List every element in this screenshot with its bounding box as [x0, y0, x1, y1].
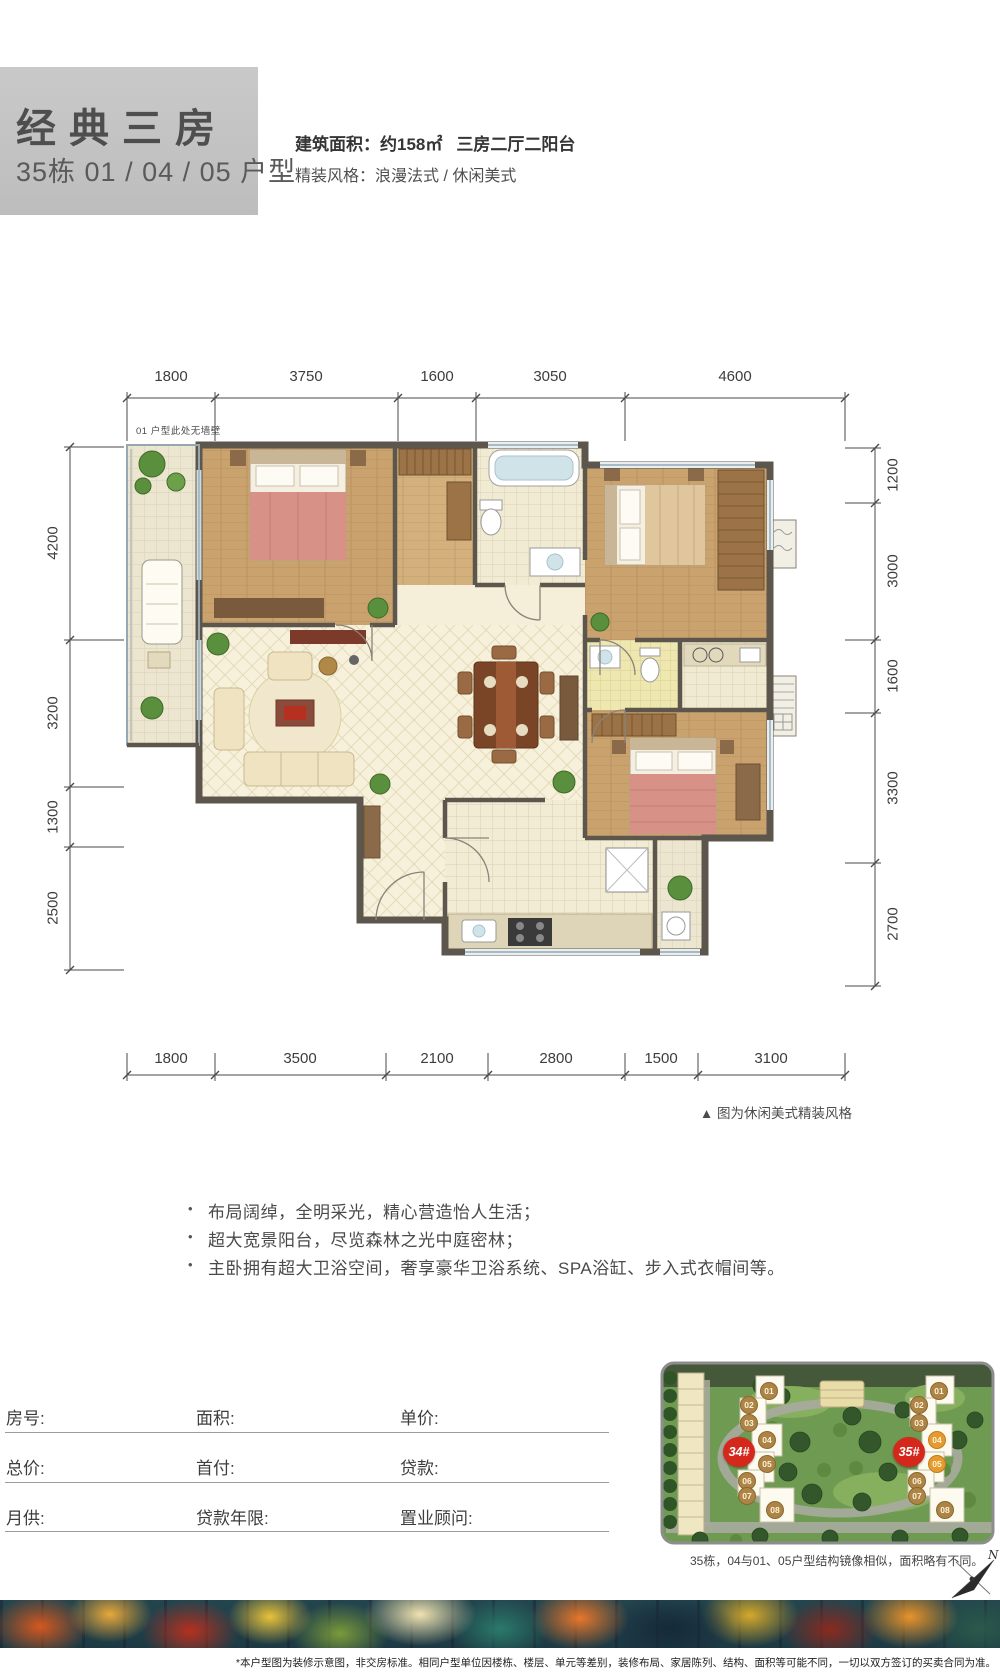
unit-badge-35-08: 08: [936, 1501, 954, 1519]
dim-left-1: 4200: [45, 526, 62, 559]
dim-bottom-3: 2100: [420, 1050, 453, 1067]
compass-north-label: N: [988, 1548, 999, 1562]
unit-badge-35-03: 03: [910, 1414, 928, 1432]
form-rule-2: [5, 1482, 609, 1483]
dim-left-2: 3200: [45, 696, 62, 729]
building-badge-34: 34#: [723, 1437, 755, 1467]
unit-badge-34-01: 01: [760, 1382, 778, 1400]
form-rule-3: [5, 1531, 609, 1532]
foyer: [360, 800, 445, 920]
unit-badge-34-08: 08: [766, 1501, 784, 1519]
form-label-consultant: 置业顾问:: [400, 1504, 473, 1529]
master-bedroom: [199, 445, 395, 625]
flyer-graphics: [0, 0, 1000, 1677]
plan-caption: ▲ 图为休闲美式精装风格: [600, 1102, 852, 1122]
dim-left-3: 1300: [45, 800, 62, 833]
dim-right-2: 3000: [885, 554, 902, 587]
living-dining-room: [199, 625, 585, 800]
bullet-icon: •: [188, 1257, 193, 1272]
utility-kitchenette: [680, 640, 770, 710]
dim-bottom-6: 3100: [754, 1050, 787, 1067]
balcony-left: [127, 445, 199, 745]
wall-note: 01 户型此处无墙壁: [136, 423, 221, 437]
feature-item-2: 超大宽景阳台，尽览森林之光中庭密林；: [208, 1226, 523, 1251]
spec-area-line: 建筑面积：约158㎡三房二厅二阳台: [295, 130, 575, 155]
unit-badge-35-04: 04: [928, 1431, 946, 1449]
dim-right-4: 3300: [885, 771, 902, 804]
dim-top-1: 1800: [154, 368, 187, 385]
ac-platforms: [770, 520, 796, 736]
form-label-downpayment: 首付:: [196, 1454, 235, 1479]
form-label-unitprice: 单价:: [400, 1404, 439, 1429]
bullet-icon: •: [188, 1229, 193, 1244]
rooms-value: 三房二厅二阳台: [456, 135, 575, 154]
area-value: 约158㎡: [380, 135, 442, 154]
unit-badge-35-07: 07: [908, 1487, 926, 1505]
dim-bottom-1: 1800: [154, 1050, 187, 1067]
dim-bottom-5: 1500: [644, 1050, 677, 1067]
master-bathroom: [475, 445, 585, 585]
disclaimer-text: *本户型图为装修示意图，非交房标准。相同户型单位因楼栋、楼层、单元等差别，装修布…: [0, 1655, 996, 1670]
spec-style-line: 精装风格：浪漫法式 / 休闲美式: [295, 162, 516, 186]
page-subtitle: 35栋 01 / 04 / 05 户型: [16, 150, 296, 189]
bedroom-3: [585, 710, 770, 838]
flyer-page: 经典三房 35栋 01 / 04 / 05 户型 建筑面积：约158㎡三房二厅二…: [0, 0, 1000, 1677]
unit-badge-35-01: 01: [930, 1382, 948, 1400]
unit-badge-34-04: 04: [758, 1431, 776, 1449]
bedroom-2: [585, 465, 770, 640]
form-label-room: 房号:: [6, 1404, 45, 1429]
dim-right-5: 2700: [885, 907, 902, 940]
form-label-monthly: 月供:: [6, 1504, 45, 1529]
dim-bottom-2: 3500: [283, 1050, 316, 1067]
dim-top-2: 3750: [289, 368, 322, 385]
form-label-total: 总价:: [6, 1454, 45, 1479]
unit-badge-34-07: 07: [738, 1487, 756, 1505]
dim-left-4: 2500: [45, 891, 62, 924]
unit-badge-34-05: 05: [758, 1455, 776, 1473]
unit-badge-35-05: 05: [928, 1455, 946, 1473]
unit-badge-34-03: 03: [740, 1414, 758, 1432]
artwork-strip: [0, 1600, 1000, 1648]
dim-top-4: 3050: [533, 368, 566, 385]
page-title: 经典三房: [16, 96, 228, 154]
dim-right-3: 1600: [885, 659, 902, 692]
service-balcony: [655, 838, 705, 952]
form-label-area: 面积:: [196, 1404, 235, 1429]
floor-plan: [127, 445, 796, 952]
style-value: 浪漫法式 / 休闲美式: [375, 168, 516, 185]
feature-item-1: 布局阔绰，全明采光，精心营造怡人生活；: [208, 1198, 541, 1223]
style-label: 精装风格：: [295, 168, 375, 185]
form-rule-1: [5, 1432, 609, 1433]
bathroom-2: [585, 640, 680, 710]
area-label: 建筑面积：: [295, 135, 380, 154]
dim-bottom-4: 2800: [539, 1050, 572, 1067]
dim-top-5: 4600: [718, 368, 751, 385]
form-label-loanterm: 贷款年限:: [196, 1504, 269, 1529]
site-plan-caption: 35栋，04与01、05户型结构镜像相似，面积略有不同。: [690, 1552, 983, 1569]
dim-right-1: 1200: [885, 458, 902, 491]
form-label-loan: 贷款:: [400, 1454, 439, 1479]
hallway: [395, 585, 585, 625]
unit-badge-34-02: 02: [740, 1396, 758, 1414]
unit-badge-35-02: 02: [910, 1396, 928, 1414]
dim-top-3: 1600: [420, 368, 453, 385]
bullet-icon: •: [188, 1201, 193, 1216]
building-badge-35: 35#: [893, 1437, 925, 1467]
feature-item-3: 主卧拥有超大卫浴空间，奢享豪华卫浴系统、SPA浴缸、步入式衣帽间等。: [208, 1254, 785, 1279]
